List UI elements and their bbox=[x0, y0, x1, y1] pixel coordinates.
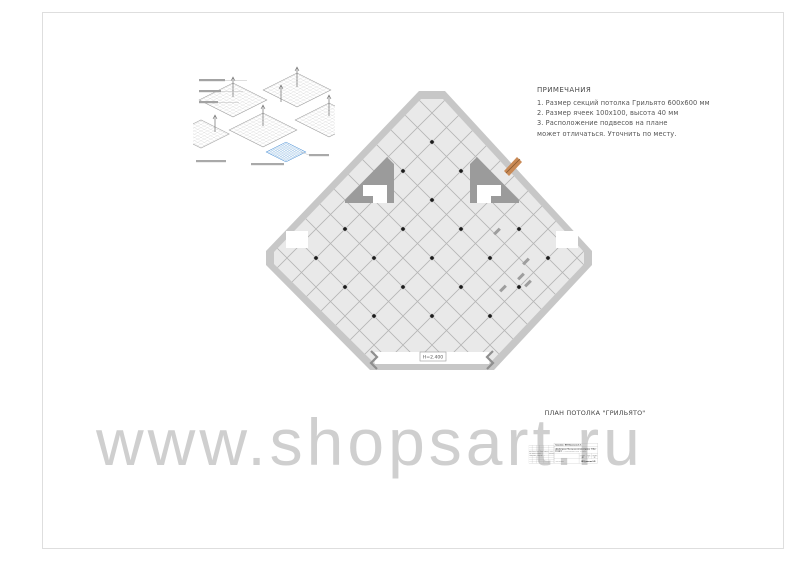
entrance-step-left bbox=[363, 196, 373, 203]
ceiling-plan: Н=2.400 bbox=[255, 80, 610, 380]
stamp-header: Подпись bbox=[544, 450, 549, 452]
height-label-text: Н=2.400 bbox=[423, 355, 444, 361]
stamp-header: №док. bbox=[540, 450, 544, 452]
stamp-header: Лист bbox=[537, 450, 540, 452]
sheets-value: 22 bbox=[594, 457, 596, 459]
sheets-header: Листов bbox=[592, 454, 597, 456]
stamp-header: Кол.уч bbox=[533, 450, 537, 452]
client-label: Заказчик: bbox=[555, 445, 564, 447]
stamp-date: 19.09.22. bbox=[549, 452, 555, 454]
drawing-title: План потолка bbox=[555, 461, 564, 463]
grilyato-grid bbox=[274, 99, 584, 364]
project-title: Дизайн-проект Мастерская мягких игрушек … bbox=[555, 447, 596, 450]
stamp-role: Рук. проекта bbox=[529, 452, 536, 454]
wall-niche-right bbox=[556, 231, 578, 248]
entrance-step-right bbox=[491, 196, 501, 203]
title-block: Изм. Кол.уч Лист №док. Подпись Дата Рук.… bbox=[425, 443, 784, 549]
stage-header: Стадия bbox=[580, 454, 585, 456]
wall-niche-left bbox=[286, 231, 308, 248]
company-name: ИП Денисенко О.П. bbox=[581, 461, 596, 463]
sheet-header: Лист bbox=[587, 454, 590, 456]
client-name: ИП Николаева Е.Г. bbox=[565, 445, 582, 447]
ceiling-panel bbox=[193, 120, 229, 148]
stamp-header: Изм. bbox=[529, 450, 532, 452]
drawing-sheet: ПРИМЕЧАНИЯ 1. Размер секций потолка Грил… bbox=[0, 0, 794, 561]
stamp-header: Дата bbox=[550, 450, 553, 452]
height-label: Н=2.400 bbox=[420, 352, 446, 361]
address-label: по адресу: bbox=[555, 451, 563, 453]
